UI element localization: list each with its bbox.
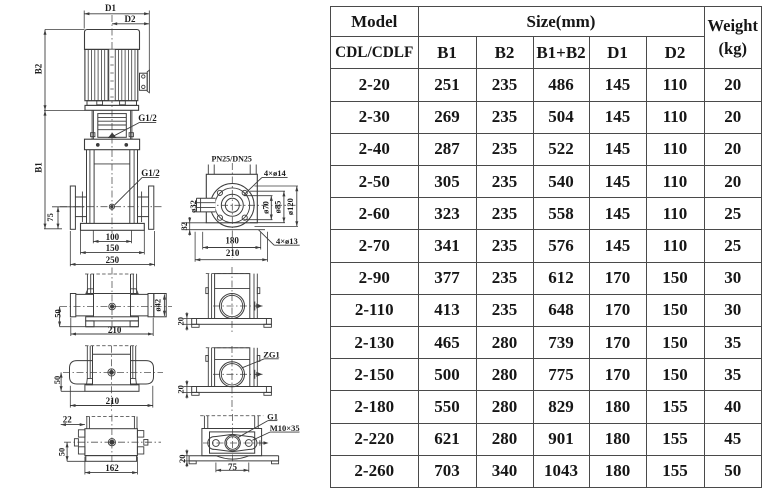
svg-text:20: 20 bbox=[177, 454, 187, 463]
svg-text:4×ø13: 4×ø13 bbox=[276, 236, 298, 246]
svg-text:75: 75 bbox=[228, 462, 238, 472]
svg-text:210: 210 bbox=[108, 325, 122, 335]
svg-text:G1/2: G1/2 bbox=[138, 113, 157, 123]
svg-text:100: 100 bbox=[106, 232, 120, 242]
svg-text:20: 20 bbox=[175, 385, 185, 394]
svg-text:75: 75 bbox=[45, 213, 55, 222]
svg-text:162: 162 bbox=[105, 463, 119, 473]
svg-text:50: 50 bbox=[52, 376, 62, 385]
svg-text:ø32: ø32 bbox=[188, 200, 198, 213]
svg-text:210: 210 bbox=[226, 248, 240, 258]
svg-text:ø120: ø120 bbox=[285, 198, 295, 215]
svg-text:ZG1: ZG1 bbox=[263, 350, 280, 360]
svg-text:ø42: ø42 bbox=[153, 299, 163, 312]
svg-text:20: 20 bbox=[175, 317, 185, 326]
svg-text:D1: D1 bbox=[105, 3, 116, 13]
svg-text:G1: G1 bbox=[267, 412, 278, 422]
svg-text:150: 150 bbox=[106, 243, 120, 253]
svg-text:ø85: ø85 bbox=[272, 201, 282, 214]
svg-text:B1: B1 bbox=[34, 162, 44, 173]
svg-text:50: 50 bbox=[53, 309, 63, 318]
svg-text:32: 32 bbox=[179, 222, 189, 231]
svg-text:PN25/DN25: PN25/DN25 bbox=[211, 154, 251, 163]
svg-text:G1/2: G1/2 bbox=[141, 168, 160, 178]
svg-text:22: 22 bbox=[63, 415, 73, 425]
svg-text:B2: B2 bbox=[34, 63, 44, 74]
svg-text:250: 250 bbox=[106, 255, 120, 265]
svg-text:D2: D2 bbox=[125, 14, 136, 24]
svg-text:50: 50 bbox=[56, 448, 66, 457]
svg-text:180: 180 bbox=[225, 235, 239, 245]
svg-text:210: 210 bbox=[106, 396, 120, 406]
svg-text:M10×35: M10×35 bbox=[270, 423, 300, 433]
svg-text:ø70: ø70 bbox=[260, 201, 270, 214]
svg-text:4×ø14: 4×ø14 bbox=[264, 168, 287, 178]
